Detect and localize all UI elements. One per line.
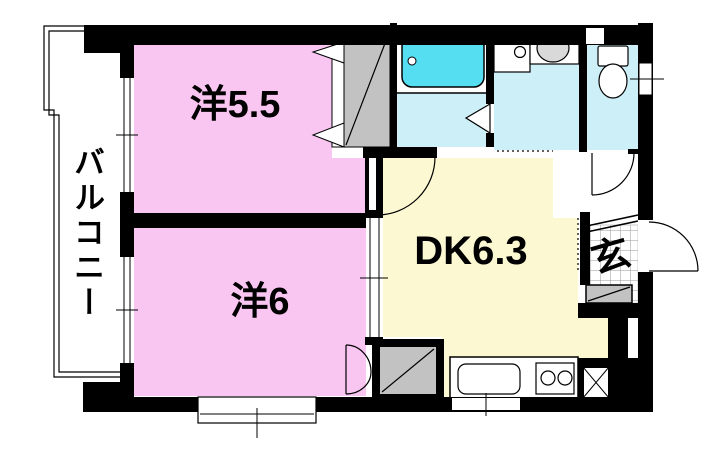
kitchen-counter <box>450 357 578 398</box>
kitchen-sink <box>458 364 520 394</box>
tub-drain <box>408 57 416 65</box>
balcony-label: バルコニー <box>56 146 102 361</box>
window-toilet-top <box>586 28 604 44</box>
western-room-5-5-label: 洋5.5 <box>140 86 330 124</box>
door-arc-entrance <box>649 222 698 271</box>
bay-window-room-6 <box>198 397 316 438</box>
toilet <box>598 46 628 98</box>
wall-slot <box>628 318 638 358</box>
wall-inner-gap <box>369 158 376 210</box>
pipe-space <box>583 367 609 398</box>
entrance-door-opening <box>638 220 653 272</box>
dining-kitchen-label: DK6.3 <box>382 231 560 271</box>
floorplan: バルコニー 洋5.5 洋6 DK6.3 玄 <box>0 0 726 454</box>
door-arc-toilet <box>592 153 634 195</box>
stove <box>536 363 574 394</box>
closet-bottom <box>372 339 444 402</box>
western-room-6-label: 洋6 <box>170 283 350 321</box>
shoe-cabinet <box>586 285 632 303</box>
floorplan-drawing <box>0 0 726 454</box>
